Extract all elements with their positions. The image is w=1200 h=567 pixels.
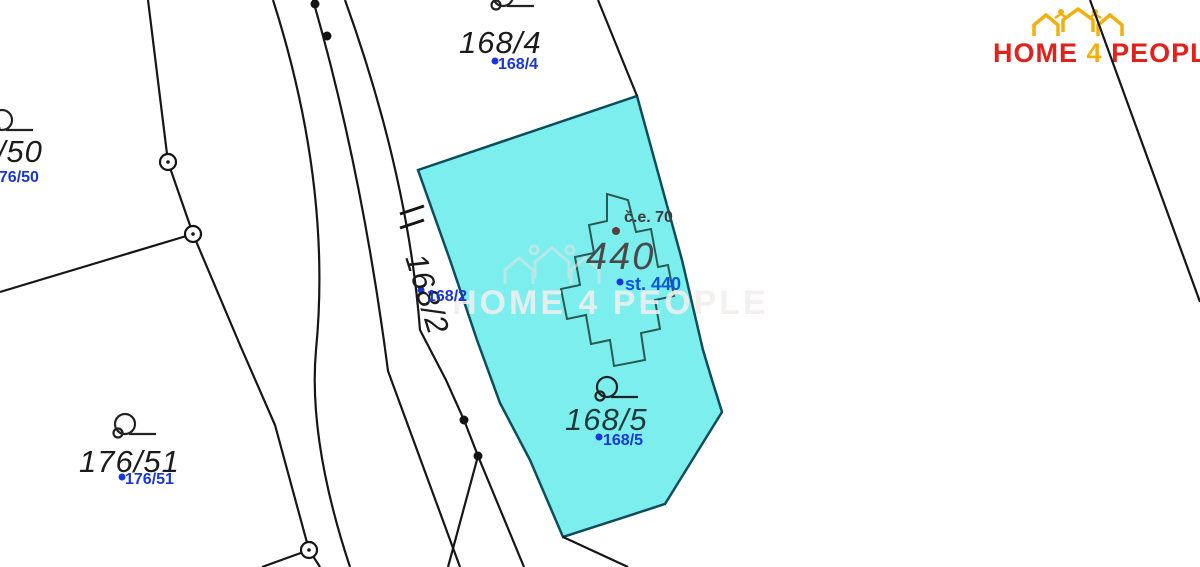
- survey-marker: [160, 154, 176, 170]
- point-dot: [323, 32, 332, 41]
- boundary-line: [448, 456, 478, 567]
- survey-markers: [160, 154, 317, 558]
- boundary-line: [598, 0, 637, 96]
- home4people-logo: HOME 4 PEOPLE: [993, 38, 1200, 69]
- parcel-label-176-50-blue: 176/50: [0, 170, 39, 186]
- parcel-label-168-4: 168/4: [459, 27, 542, 58]
- landuse-symbol-176-50: [0, 110, 33, 134]
- parcel-label-168-5: 168/5: [565, 404, 648, 435]
- building-point-dot: [612, 227, 620, 235]
- parcel-label-176-50: 176/50: [0, 136, 43, 167]
- parcel-label-176-51-blue: 176/51: [125, 472, 174, 488]
- boundary-line: [0, 234, 193, 292]
- landuse-symbol-176-51: [114, 414, 157, 438]
- landuse-symbol-168-4: [492, 0, 535, 10]
- home4people-crown-icon: [1030, 6, 1130, 38]
- boundary-line: [193, 234, 309, 550]
- boundary-line: [148, 0, 193, 234]
- cadastral-map: HOME 4 PEOPLE 168/4 168/4 176/50 176/50 …: [0, 0, 1200, 567]
- boundary-line: [563, 537, 628, 567]
- watermark-text: HOME 4 PEOPLE: [452, 286, 769, 320]
- road-edge-line: [273, 0, 350, 567]
- building-number-label: 440: [586, 238, 655, 276]
- point-dot: [474, 452, 483, 461]
- logo-4: 4: [1087, 38, 1103, 68]
- point-dot: [460, 416, 469, 425]
- survey-marker: [185, 226, 201, 242]
- parcel-label-168-4-blue: 168/4: [498, 57, 538, 73]
- building-note-label: č.e. 70: [624, 210, 673, 226]
- point-dot: [311, 0, 320, 9]
- parcel-label-168-5-blue: 168/5: [603, 433, 643, 449]
- building-label-blue: st. 440: [625, 275, 681, 293]
- survey-marker: [301, 542, 317, 558]
- parcel-label-168-2-blue: 168/2: [427, 289, 467, 305]
- logo-people: PEOPLE: [1111, 38, 1200, 68]
- logo-home: HOME: [993, 38, 1078, 68]
